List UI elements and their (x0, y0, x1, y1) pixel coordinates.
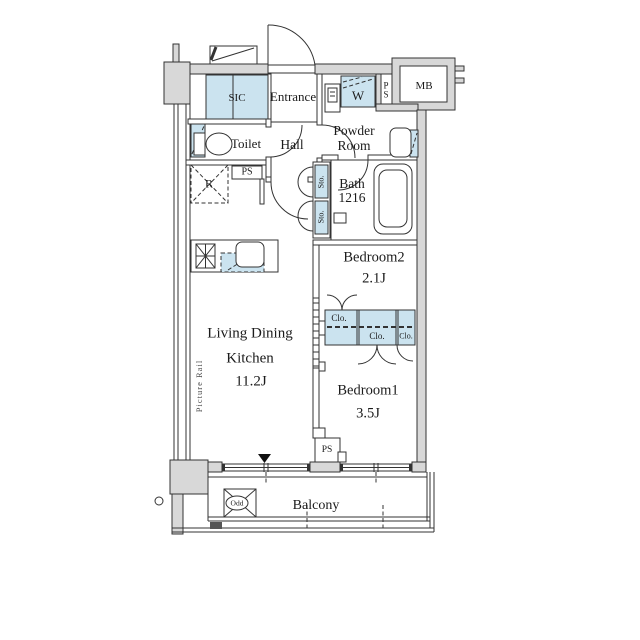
label-mb: MB (415, 80, 432, 92)
gas-stove (196, 244, 215, 268)
label-sto-2: Sto. (317, 211, 326, 224)
drain (210, 522, 222, 529)
label-entrance: Entrance (270, 89, 316, 105)
label-ldk-2: Kitchen (226, 351, 273, 368)
exterior-thin-walls (174, 46, 190, 528)
label-closet-1: Clo. (331, 313, 346, 323)
label-bedroom1: Bedroom1 (337, 383, 398, 400)
entrance-door (268, 25, 315, 65)
sliding-door (313, 298, 319, 368)
louver-window (210, 46, 257, 64)
label-ps-kitchen: PS (241, 167, 252, 178)
label-sto-1: Sto. (317, 176, 326, 189)
o-mark (155, 497, 163, 505)
label-powder-room-2: Room (337, 138, 370, 154)
label-ldk-1: Living Dining (207, 326, 292, 343)
label-ldk-size: 11.2J (235, 374, 267, 391)
label-bath-size: 1216 (339, 190, 366, 206)
label-bedroom2: Bedroom2 (343, 250, 404, 267)
label-picture-rail: Picture Rail (194, 360, 204, 412)
label-hatch-odd: Odd (231, 499, 244, 508)
label-bedroom1-size: 3.5J (356, 406, 380, 423)
water-heater (325, 84, 340, 112)
direction-triangle (258, 454, 271, 463)
label-ps-top: PS (382, 82, 391, 99)
label-washing-machine: W (352, 88, 364, 104)
label-refrigerator: R (205, 177, 213, 192)
label-balcony: Balcony (293, 498, 340, 514)
label-closet-3: Clo. (399, 332, 413, 341)
label-hall: Hall (280, 137, 303, 153)
label-bedroom2-size: 2.1J (362, 271, 386, 288)
bath-counter (334, 213, 346, 223)
entrance-sill (268, 65, 315, 73)
label-closet-2: Clo. (369, 331, 384, 341)
floorplan-drawing (0, 0, 640, 640)
right-wall (417, 110, 426, 472)
storage-sto (298, 162, 330, 238)
label-powder-room-1: Powder (333, 123, 374, 139)
kitchen-sink (236, 242, 264, 267)
closet (325, 295, 415, 364)
floor-plan: SIC Entrance W PS MB Toilet Hall Powder … (0, 0, 640, 640)
toilet-fixture (191, 124, 232, 157)
label-ps-bottom: PS (322, 445, 333, 455)
kitchen-counter (191, 240, 278, 272)
pillar-top-left (164, 62, 190, 104)
washbasin (390, 128, 418, 157)
label-sic: SIC (228, 92, 245, 104)
ldk-door-arc (271, 182, 308, 219)
label-toilet: Toilet (231, 136, 261, 152)
pillar-bottom-left (170, 460, 208, 494)
